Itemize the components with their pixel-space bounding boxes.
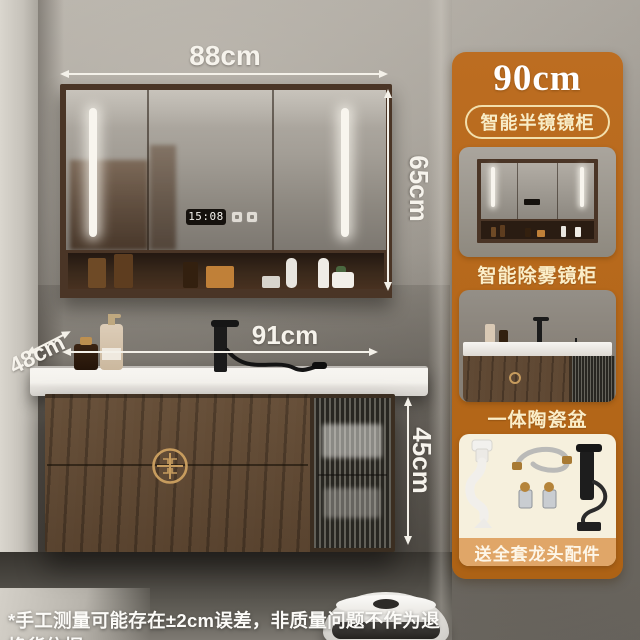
mirror-width-label: 88cm	[160, 40, 290, 72]
arrowhead-icon	[379, 70, 388, 78]
cabinet-drawers	[45, 394, 310, 552]
mirror-highlight	[66, 90, 386, 128]
accessories-illustration	[459, 434, 616, 538]
pump-bottle-spout	[112, 314, 121, 318]
wall-corner-highlight	[428, 0, 452, 640]
thumb-led-strip	[580, 167, 584, 207]
mirror-width-arrow	[63, 73, 385, 75]
vanity-width-arrow	[65, 351, 375, 353]
defog-touch-button-icon	[231, 211, 243, 223]
panel-feature-badge: 智能半镜镜柜	[465, 105, 610, 139]
towel-behind-glass	[324, 488, 380, 518]
shelf-bottle	[114, 254, 133, 288]
thumb-vase	[575, 227, 581, 237]
led-light-strip	[341, 108, 349, 237]
vanity-width-label: 91cm	[235, 320, 335, 351]
thumb-door-seam	[517, 163, 518, 219]
thumb-countertop	[463, 342, 612, 356]
arrowhead-icon	[404, 397, 412, 406]
thumb-bottle	[485, 324, 495, 343]
arrowhead-icon	[384, 89, 392, 98]
shelf-tube	[286, 258, 297, 288]
mirror-reflection	[70, 160, 148, 250]
thumb-mirror	[481, 163, 594, 219]
counter-jar	[74, 344, 98, 370]
shelf-cavity	[68, 253, 384, 289]
thumb-bottle	[525, 228, 531, 237]
promo-panel: 90cm 智能半镜镜柜 智能除雾镜柜	[452, 52, 623, 579]
product-image: 15:08	[0, 0, 640, 640]
caption-mirror-cabinet: 智能除雾镜柜	[452, 261, 623, 288]
shelf-towel	[206, 266, 234, 288]
pump-bottle-label	[102, 348, 121, 360]
ribbed-glass-door	[310, 394, 395, 552]
light-touch-button-icon	[246, 211, 258, 223]
thumb-medallion	[509, 372, 521, 384]
shelf-bottle	[88, 258, 106, 288]
thumbnail-ceramic-basin	[459, 290, 616, 402]
arrowhead-icon	[369, 348, 378, 356]
glass-shelf-line	[318, 474, 387, 476]
thumb-towel	[537, 230, 545, 237]
counter-jar-cap	[80, 337, 92, 345]
thumb-tube	[561, 226, 566, 237]
gold-medallion-handle	[150, 446, 190, 486]
thumb-door-seam	[557, 163, 558, 219]
thumb-shelf	[481, 221, 594, 239]
thumbnail-mirror-cabinet	[459, 147, 616, 257]
measurement-disclaimer: *手工测量可能存在±2cm误差，非质量问题不作为退换货依据	[8, 607, 453, 640]
arrowhead-icon	[60, 70, 69, 78]
mirror-door-seam	[272, 90, 274, 250]
shelf-vase	[318, 258, 329, 288]
thumb-vanity	[463, 356, 612, 402]
mirror-clock-display: 15:08	[186, 209, 226, 225]
shelf-bottle	[183, 262, 198, 288]
led-light-strip	[89, 108, 97, 237]
shelf-dish	[262, 276, 280, 288]
counter-pump-bottle	[100, 324, 123, 370]
thumb-bottle	[491, 227, 496, 237]
thumb-cabinet	[477, 159, 598, 243]
mirror-height-label: 65cm	[386, 156, 450, 220]
caption-faucet-accessories: 送全套龙头配件	[459, 538, 616, 566]
panel-size-title: 90cm	[452, 57, 623, 100]
mirror-door-seam	[147, 90, 149, 250]
mirror-reflection	[150, 145, 176, 250]
thumb-clock	[524, 199, 540, 205]
caption-ceramic-basin: 一体陶瓷盆	[452, 405, 623, 432]
vanity-cabinet	[45, 394, 395, 552]
vanity-height-label: 45cm	[389, 428, 453, 492]
thumb-glass-door	[569, 356, 615, 402]
thumb-led-strip	[491, 167, 495, 207]
arrowhead-icon	[404, 536, 412, 545]
wall-pillar	[0, 0, 38, 640]
shelf-jar	[332, 272, 354, 288]
thumbnail-faucet-accessories: 送全套龙头配件	[459, 434, 616, 566]
drawer-top-rail	[45, 394, 310, 398]
thumb-bottle	[500, 225, 505, 237]
towel-behind-glass	[322, 424, 382, 458]
arrowhead-icon	[384, 282, 392, 291]
